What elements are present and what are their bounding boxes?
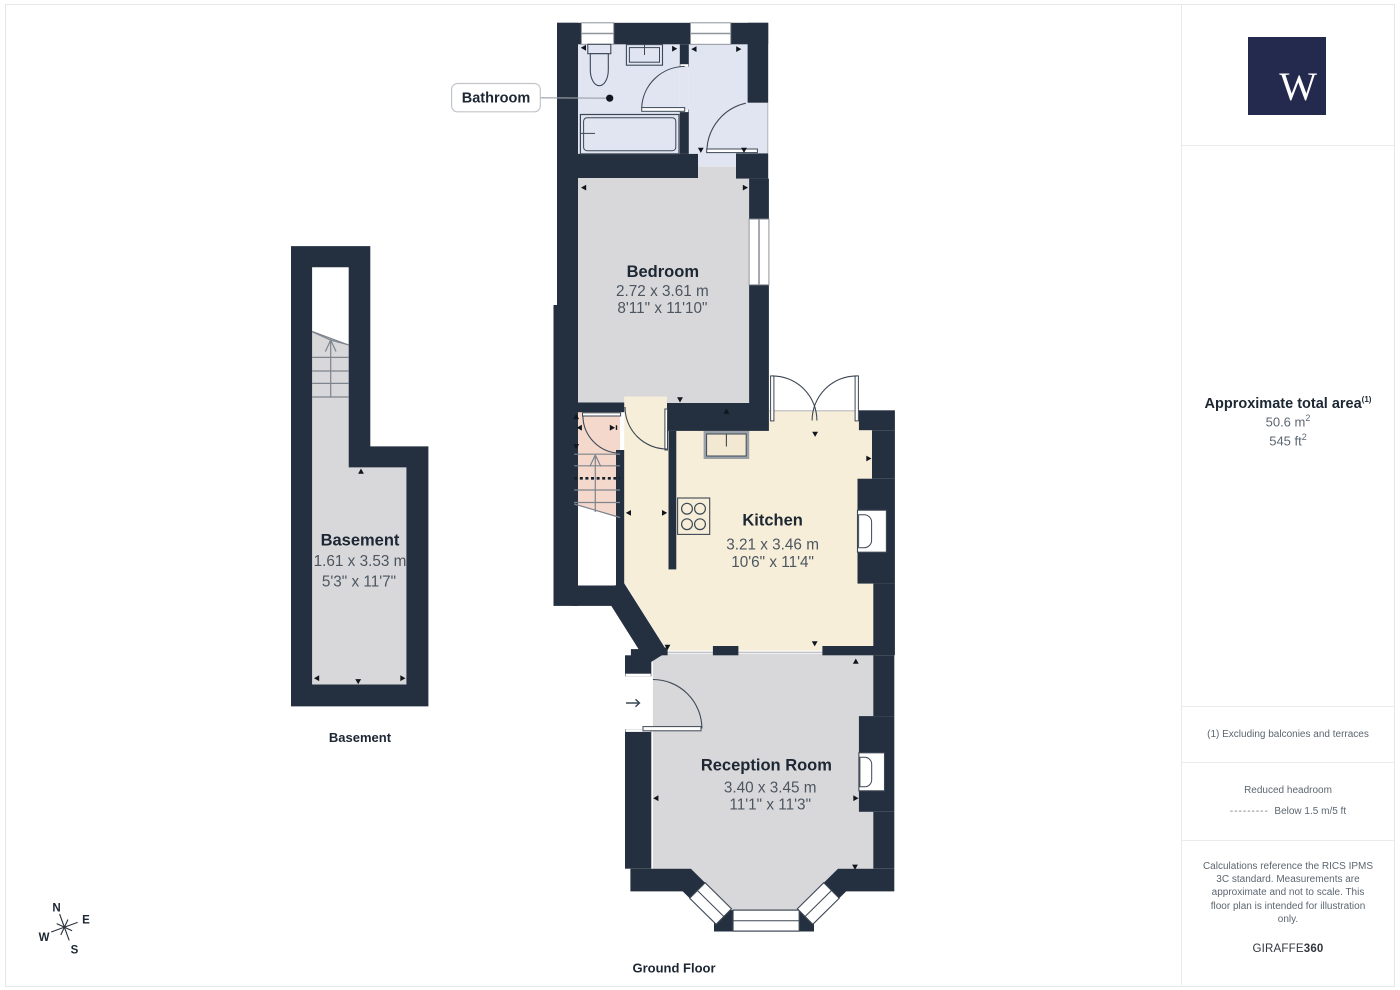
svg-text:5'3" x 11'7": 5'3" x 11'7": [322, 574, 396, 591]
svg-text:S: S: [71, 945, 79, 957]
svg-text:Ground Floor: Ground Floor: [632, 961, 715, 976]
svg-text:Basement: Basement: [329, 730, 392, 745]
svg-text:3.40 x 3.45 m: 3.40 x 3.45 m: [724, 780, 817, 797]
svg-text:Kitchen: Kitchen: [742, 512, 803, 530]
svg-text:1.61 x 3.53 m: 1.61 x 3.53 m: [314, 553, 407, 570]
svg-text:W: W: [39, 932, 50, 944]
svg-text:Reception Room: Reception Room: [701, 757, 832, 775]
svg-text:Basement: Basement: [321, 532, 400, 550]
svg-text:2.72 x 3.61 m: 2.72 x 3.61 m: [616, 283, 709, 300]
svg-text:E: E: [82, 915, 90, 927]
svg-text:Bathroom: Bathroom: [462, 91, 530, 107]
svg-text:3.21 x 3.46 m: 3.21 x 3.46 m: [726, 537, 819, 554]
svg-text:10'6" x 11'4": 10'6" x 11'4": [731, 554, 814, 571]
svg-text:11'1" x 11'3": 11'1" x 11'3": [729, 797, 811, 814]
svg-text:8'11" x 11'10": 8'11" x 11'10": [617, 300, 707, 317]
svg-text:N: N: [52, 903, 60, 915]
svg-text:Bedroom: Bedroom: [627, 263, 699, 281]
